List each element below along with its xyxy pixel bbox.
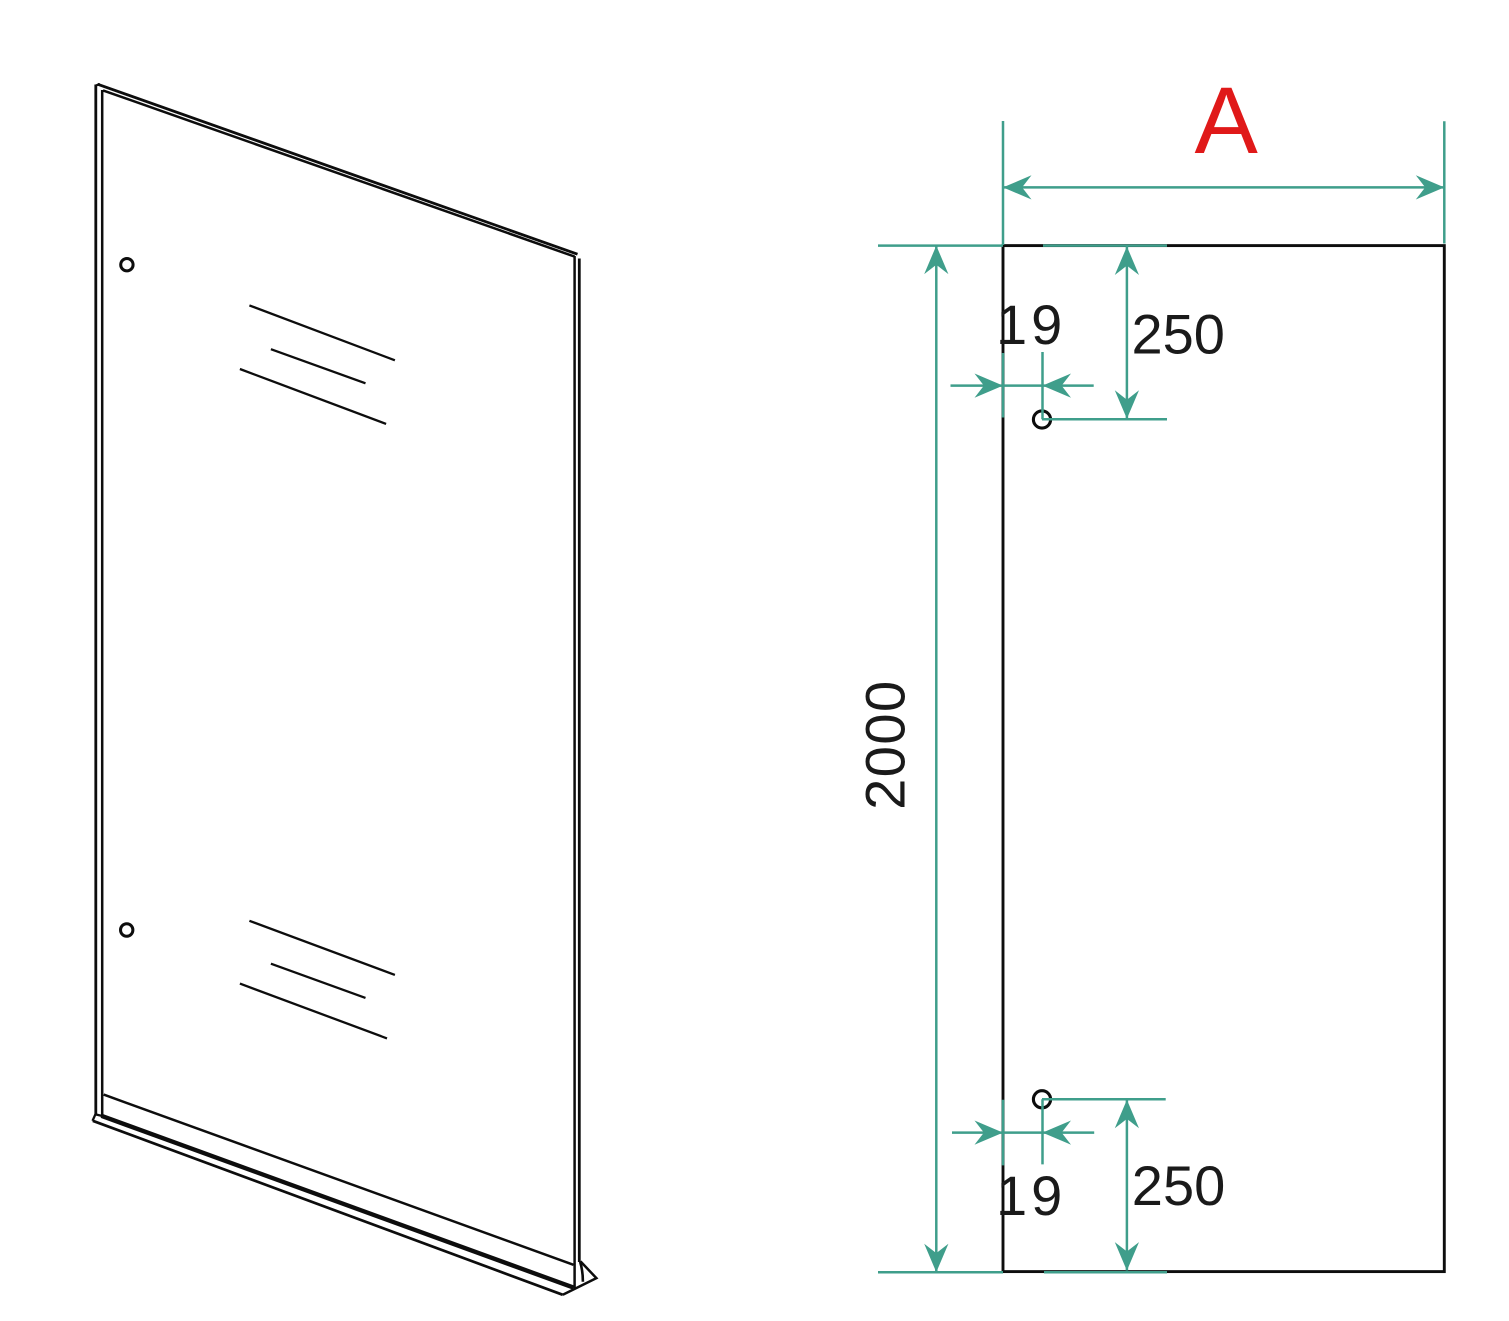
svg-text:250: 250 (1132, 302, 1225, 365)
svg-text:250: 250 (1132, 1154, 1225, 1217)
svg-text:19: 19 (996, 293, 1066, 356)
svg-text:A: A (1195, 68, 1259, 174)
svg-text:19: 19 (996, 1164, 1066, 1227)
svg-text:2000: 2000 (854, 679, 917, 810)
